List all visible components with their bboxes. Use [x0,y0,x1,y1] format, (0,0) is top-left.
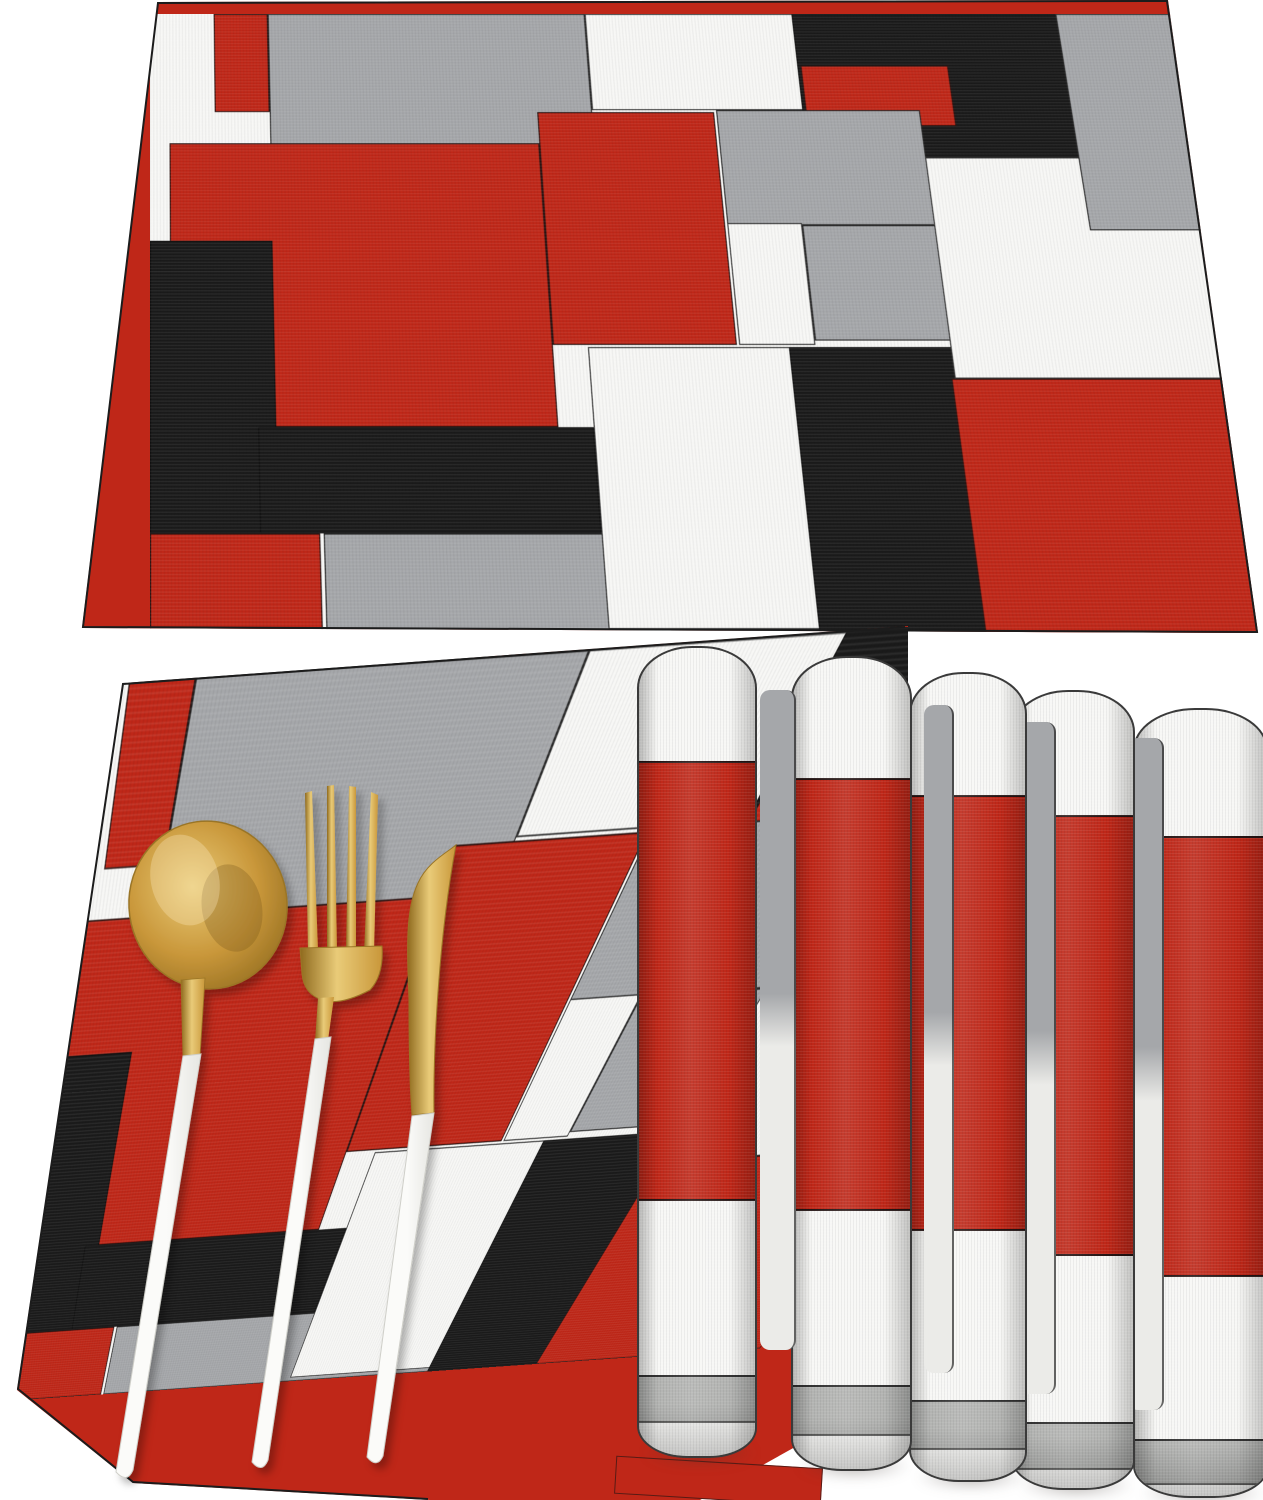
knife-blade [408,845,456,1115]
fork-tine [364,792,378,953]
fork-head [300,946,382,1002]
fork-handle [252,1037,331,1468]
fork-tine [346,786,356,951]
fork-tine [305,791,318,952]
knife-handle [367,1113,434,1463]
knife [367,845,456,1463]
cutlery-set [0,0,1263,1500]
fork-tine [327,785,337,951]
product-photo-stage [0,0,1263,1500]
fork-neck [315,997,334,1041]
spoon-handle [116,1054,201,1478]
spoon-neck [181,978,205,1058]
